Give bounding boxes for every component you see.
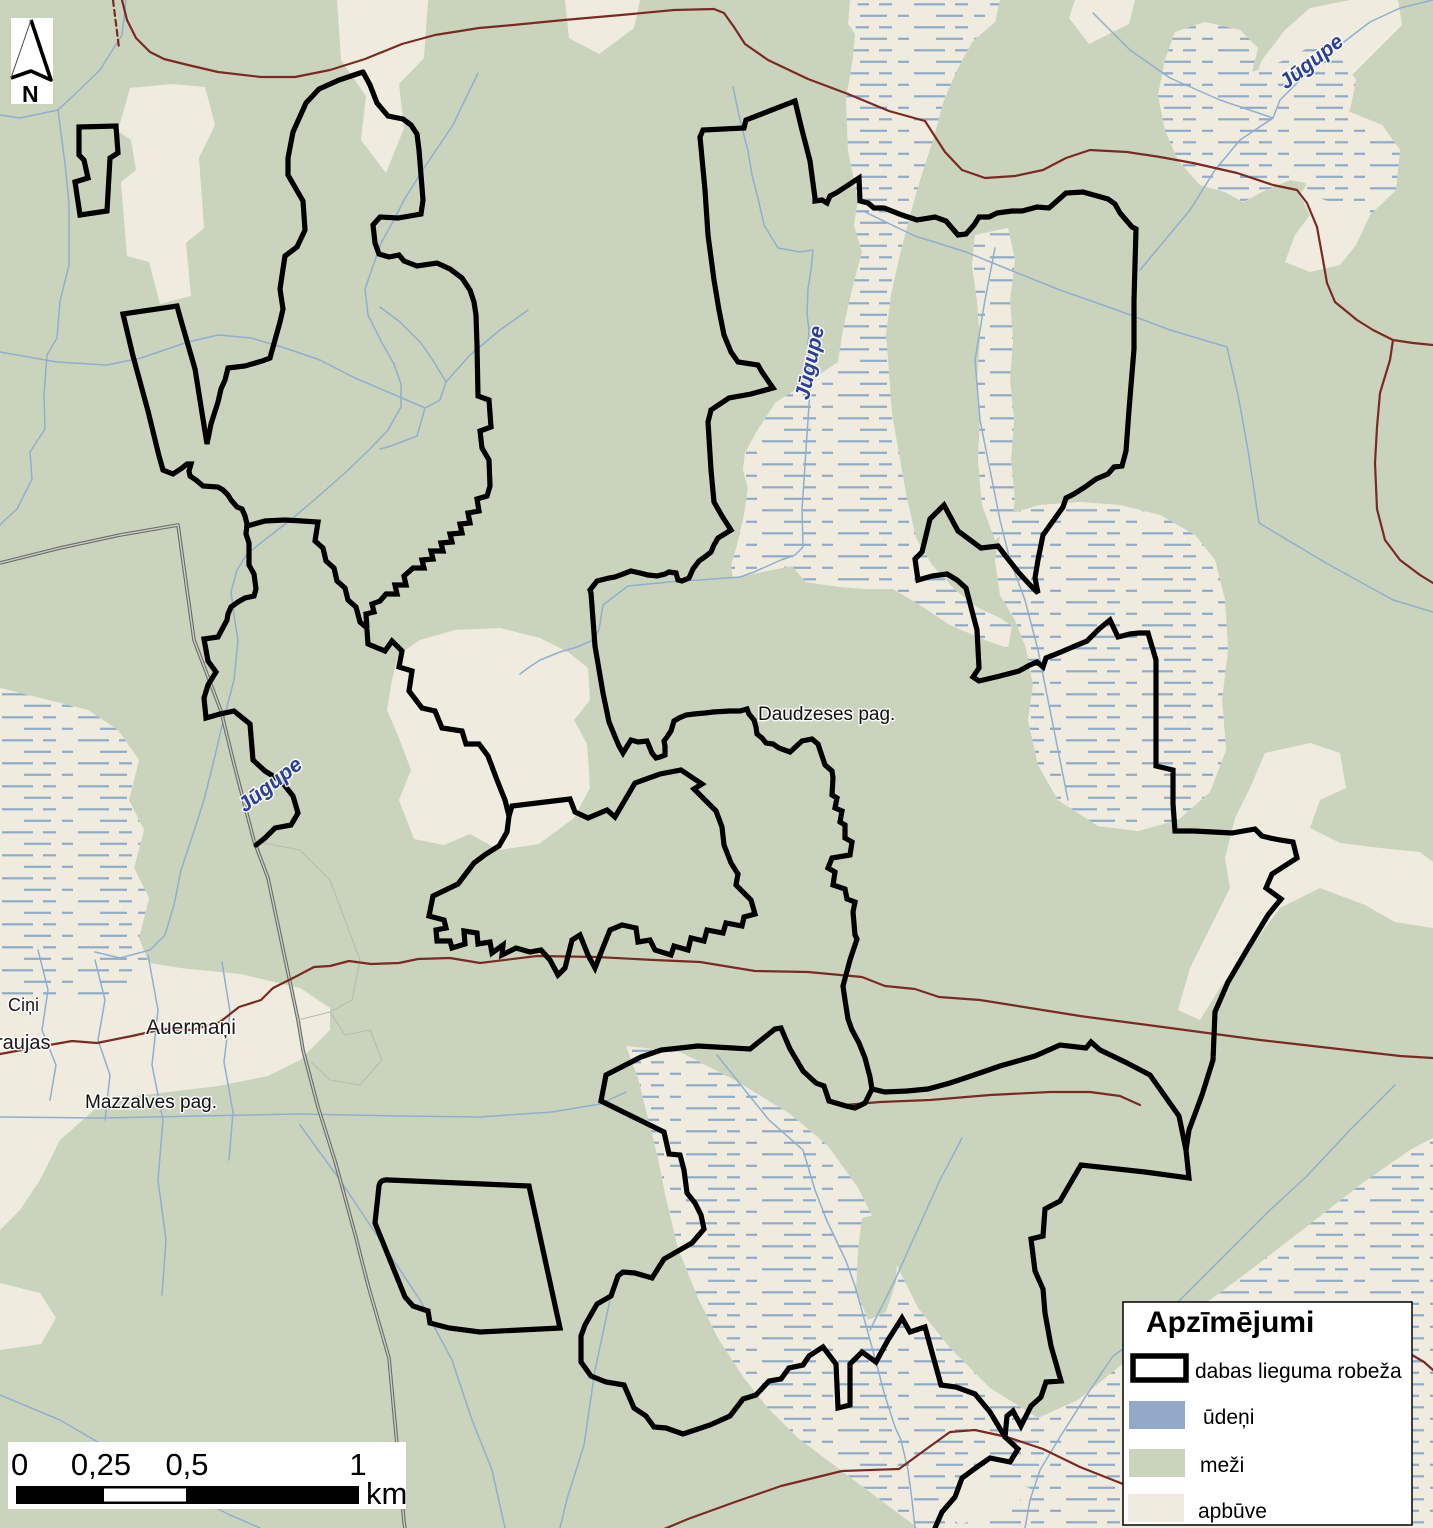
svg-text:N: N xyxy=(22,81,39,107)
svg-text:ūdeņi: ūdeņi xyxy=(1203,1406,1254,1429)
svg-text:meži: meži xyxy=(1200,1454,1244,1477)
svg-text:apbūve: apbūve xyxy=(1198,1500,1267,1523)
svg-text:raujas: raujas xyxy=(0,1032,50,1054)
svg-text:1: 1 xyxy=(349,1447,366,1482)
svg-text:km: km xyxy=(366,1476,407,1511)
svg-text:0: 0 xyxy=(11,1447,28,1482)
svg-text:0,25: 0,25 xyxy=(71,1447,131,1482)
svg-text:Auermaņi: Auermaņi xyxy=(146,1016,236,1039)
svg-text:Apzīmējumi: Apzīmējumi xyxy=(1146,1306,1314,1339)
svg-text:Daudzeses pag.: Daudzeses pag. xyxy=(758,704,895,725)
svg-text:0,5: 0,5 xyxy=(165,1447,208,1482)
svg-text:Ciņi: Ciņi xyxy=(8,995,39,1015)
svg-text:dabas lieguma robeža: dabas lieguma robeža xyxy=(1195,1360,1402,1383)
svg-text:Mazzalves pag.: Mazzalves pag. xyxy=(85,1092,217,1113)
